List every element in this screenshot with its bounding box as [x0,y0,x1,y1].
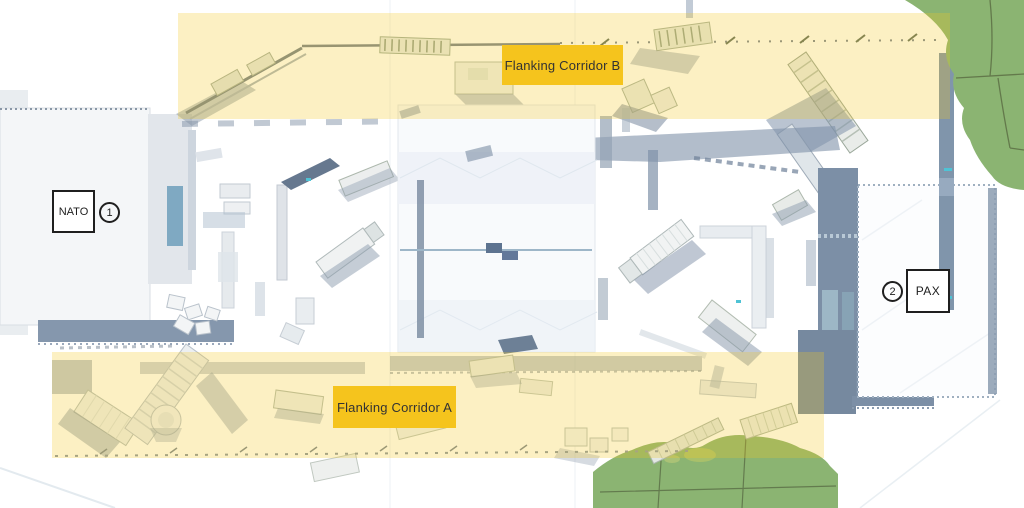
flanking-corridor-b-label: Flanking Corridor B [502,45,623,85]
nato-spawn-label: NATO [52,190,95,233]
pax-spawn-number: 2 [882,281,903,302]
tactical-map: Flanking Corridor B Flanking Corridor A … [0,0,1024,508]
flanking-corridor-a-label: Flanking Corridor A [333,386,456,428]
nato-spawn-number: 1 [99,202,120,223]
pax-spawn-label: PAX [906,269,950,313]
